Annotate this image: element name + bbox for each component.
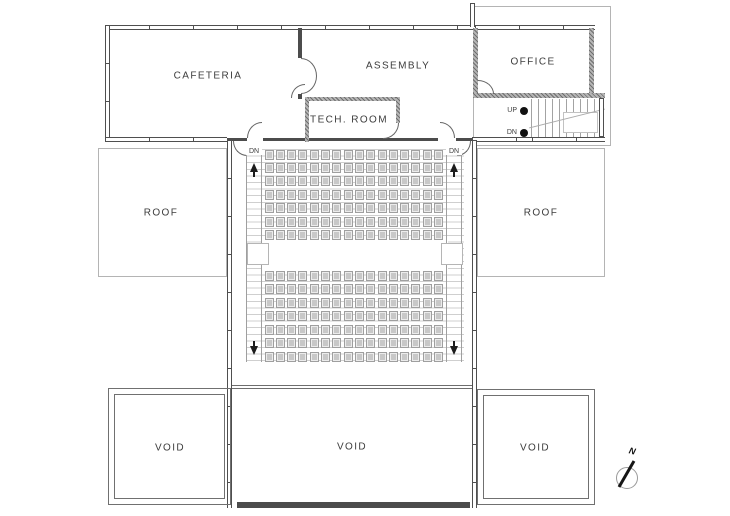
seat (355, 203, 364, 213)
seat (265, 203, 274, 213)
seat (366, 176, 375, 186)
seat (298, 271, 307, 281)
seat (265, 230, 274, 240)
seat (265, 338, 274, 348)
seat (400, 230, 409, 240)
compass-north-label: N (628, 445, 637, 456)
seat (423, 325, 432, 335)
seat (378, 230, 387, 240)
seat (355, 311, 364, 321)
seat (332, 311, 341, 321)
seat (355, 298, 364, 308)
seat (378, 271, 387, 281)
seat (265, 298, 274, 308)
seat (389, 190, 398, 200)
seat (321, 150, 330, 160)
seat (355, 271, 364, 281)
seat (276, 298, 285, 308)
seat (411, 203, 420, 213)
seat (310, 190, 319, 200)
seat (287, 338, 296, 348)
auditorium-wall-bottom (232, 385, 472, 389)
seat (310, 352, 319, 362)
seat (389, 338, 398, 348)
seat (378, 217, 387, 227)
seat (411, 230, 420, 240)
seat (310, 203, 319, 213)
room-label-cafeteria: CAFETERIA (174, 71, 243, 82)
seat (366, 338, 375, 348)
seat (332, 325, 341, 335)
seat (411, 352, 420, 362)
seat (389, 230, 398, 240)
seat (411, 190, 420, 200)
room-label-void-left: VOID (155, 443, 185, 454)
office-wall-right (589, 28, 594, 93)
seat (287, 325, 296, 335)
seat (298, 338, 307, 348)
office-wall-top (475, 25, 595, 30)
seat (366, 284, 375, 294)
seat (310, 150, 319, 160)
seat (366, 311, 375, 321)
seat (411, 298, 420, 308)
seat (355, 150, 364, 160)
seat (344, 352, 353, 362)
seat (366, 203, 375, 213)
aisle-up-arrow-icon (250, 163, 258, 172)
seat (344, 284, 353, 294)
stair-down-dot (520, 129, 528, 137)
wall-segment (105, 137, 227, 142)
seat (366, 190, 375, 200)
seat (310, 298, 319, 308)
seat (378, 352, 387, 362)
aisle-down-arrow-icon (450, 346, 458, 355)
wall-segment (298, 28, 302, 58)
seat (389, 203, 398, 213)
seat (411, 176, 420, 186)
seat (265, 325, 274, 335)
seat (332, 284, 341, 294)
seat (389, 352, 398, 362)
seat (400, 284, 409, 294)
seat (321, 176, 330, 186)
seat (298, 190, 307, 200)
seat (423, 150, 432, 160)
seat (400, 217, 409, 227)
seat (265, 284, 274, 294)
seat (423, 217, 432, 227)
tech-room-wall (305, 97, 400, 101)
seat (366, 230, 375, 240)
seat (400, 271, 409, 281)
seat (344, 230, 353, 240)
seat (400, 176, 409, 186)
seat (310, 311, 319, 321)
seat (378, 163, 387, 173)
wall-segment (599, 98, 604, 137)
seat (276, 190, 285, 200)
room-label-void-right: VOID (520, 443, 550, 454)
seat (310, 176, 319, 186)
seat (411, 271, 420, 281)
seat (366, 298, 375, 308)
seat (321, 325, 330, 335)
seat (434, 325, 443, 335)
seat (298, 325, 307, 335)
seat (400, 311, 409, 321)
seat (276, 325, 285, 335)
seat (265, 352, 274, 362)
seat (423, 203, 432, 213)
seat (434, 284, 443, 294)
seat (434, 298, 443, 308)
seat (332, 230, 341, 240)
seat (287, 176, 296, 186)
wall-segment (237, 502, 470, 508)
seat (400, 190, 409, 200)
seat (423, 176, 432, 186)
exterior-wall-top (105, 25, 475, 30)
seat (276, 150, 285, 160)
seat (344, 176, 353, 186)
seat (355, 338, 364, 348)
seat (434, 338, 443, 348)
auditorium-door-arc (233, 141, 247, 156)
seat (332, 217, 341, 227)
seat (265, 311, 274, 321)
seat (411, 284, 420, 294)
seat (310, 271, 319, 281)
seat (366, 325, 375, 335)
seat (378, 298, 387, 308)
seat (400, 338, 409, 348)
seat (276, 217, 285, 227)
seat (389, 325, 398, 335)
seat (344, 338, 353, 348)
seat (332, 298, 341, 308)
seat (321, 271, 330, 281)
seat (355, 163, 364, 173)
seat (355, 325, 364, 335)
seat (344, 298, 353, 308)
aisle-landing-right (441, 243, 463, 265)
seat (378, 338, 387, 348)
aisle-landing-left (247, 243, 269, 265)
seat (366, 352, 375, 362)
seat (344, 217, 353, 227)
seat (265, 150, 274, 160)
tech-room-wall (305, 97, 309, 142)
seat (287, 271, 296, 281)
wall-segment (470, 3, 475, 27)
seat (276, 203, 285, 213)
seat (389, 163, 398, 173)
seat (298, 311, 307, 321)
seat (298, 176, 307, 186)
seat (389, 217, 398, 227)
seat (411, 163, 420, 173)
seat (321, 311, 330, 321)
seat (400, 298, 409, 308)
exit-left-label: DN (246, 148, 262, 155)
seat (332, 150, 341, 160)
seat (310, 163, 319, 173)
seat (344, 163, 353, 173)
seat (287, 230, 296, 240)
seat (366, 217, 375, 227)
seat (344, 150, 353, 160)
seat (378, 190, 387, 200)
seat (276, 271, 285, 281)
seat (265, 176, 274, 186)
seat (332, 176, 341, 186)
seat (332, 163, 341, 173)
seat (265, 163, 274, 173)
seat (298, 163, 307, 173)
seat (321, 203, 330, 213)
room-label-void-center: VOID (337, 442, 367, 453)
seat (366, 271, 375, 281)
exit-right-label: DN (446, 148, 462, 155)
seat (366, 150, 375, 160)
seat (411, 325, 420, 335)
seat (434, 271, 443, 281)
seat (389, 271, 398, 281)
seat (298, 352, 307, 362)
seat (321, 163, 330, 173)
seat (321, 217, 330, 227)
seat (378, 325, 387, 335)
seat (276, 163, 285, 173)
seat (400, 325, 409, 335)
seat (287, 311, 296, 321)
aisle-up-arrow-icon (450, 163, 458, 172)
seat (298, 284, 307, 294)
seat (287, 190, 296, 200)
seat (310, 325, 319, 335)
seat (287, 163, 296, 173)
seat (389, 150, 398, 160)
stair-down-label: DN (496, 129, 517, 136)
seat (434, 352, 443, 362)
seat (355, 352, 364, 362)
entry-door-arc (440, 122, 455, 138)
seat (423, 271, 432, 281)
seat (265, 190, 274, 200)
seat (344, 271, 353, 281)
seat (298, 150, 307, 160)
floor-plan: UP DN DN DN CAFETERIA ASSEMBLY OFFICE TE… (0, 0, 730, 516)
seat (355, 176, 364, 186)
seat (332, 203, 341, 213)
seat (287, 150, 296, 160)
seat (287, 352, 296, 362)
seat (411, 311, 420, 321)
seat (434, 203, 443, 213)
seat (355, 217, 364, 227)
room-label-roof-right: ROOF (524, 208, 559, 219)
seat (276, 338, 285, 348)
seat (434, 311, 443, 321)
seat (423, 190, 432, 200)
seat (321, 338, 330, 348)
seat (400, 163, 409, 173)
wall-segment (532, 137, 605, 142)
seat (287, 203, 296, 213)
seat (355, 284, 364, 294)
seat (434, 150, 443, 160)
seat (310, 230, 319, 240)
seat (389, 298, 398, 308)
seat (378, 150, 387, 160)
room-label-assembly: ASSEMBLY (366, 61, 430, 72)
seat (265, 217, 274, 227)
seat (378, 284, 387, 294)
seat (423, 298, 432, 308)
seat (321, 284, 330, 294)
seat (434, 176, 443, 186)
seat (400, 352, 409, 362)
seat (411, 338, 420, 348)
seat (355, 190, 364, 200)
seat (423, 230, 432, 240)
seat (389, 311, 398, 321)
seat (287, 217, 296, 227)
seat (310, 284, 319, 294)
seat (400, 203, 409, 213)
cross-aisle (262, 241, 448, 269)
seat (298, 298, 307, 308)
seat (310, 217, 319, 227)
seat (298, 217, 307, 227)
seat (321, 230, 330, 240)
wall-segment (472, 137, 532, 142)
seat (411, 150, 420, 160)
seat (366, 163, 375, 173)
seat (434, 190, 443, 200)
seat (423, 163, 432, 173)
seat (276, 176, 285, 186)
seat (310, 338, 319, 348)
door-arc (291, 84, 305, 98)
seat (276, 230, 285, 240)
seat (321, 298, 330, 308)
seat (332, 352, 341, 362)
seat (434, 230, 443, 240)
seat (298, 203, 307, 213)
double-door-arc (301, 58, 317, 76)
seat (344, 190, 353, 200)
seat (423, 311, 432, 321)
auditorium-wall-top (263, 138, 438, 141)
seat (344, 325, 353, 335)
seat (423, 284, 432, 294)
tech-room-wall (396, 97, 400, 123)
seat (265, 271, 274, 281)
seat (378, 203, 387, 213)
seat (287, 298, 296, 308)
seat (321, 190, 330, 200)
seat (411, 217, 420, 227)
stair-up-dot (520, 107, 528, 115)
exterior-wall-left (105, 25, 110, 142)
seat (344, 311, 353, 321)
seat (378, 176, 387, 186)
aisle-down-arrow-icon (250, 346, 258, 355)
room-label-tech-room: TECH. ROOM (310, 115, 388, 126)
room-label-roof-left: ROOF (144, 208, 179, 219)
seat (298, 230, 307, 240)
seat (423, 352, 432, 362)
seat (355, 230, 364, 240)
seat (389, 284, 398, 294)
seat (332, 190, 341, 200)
seat (389, 176, 398, 186)
seat (287, 284, 296, 294)
seat (276, 352, 285, 362)
seat (378, 311, 387, 321)
seat (400, 150, 409, 160)
seat (332, 271, 341, 281)
seat (321, 352, 330, 362)
seat (276, 311, 285, 321)
seat (434, 163, 443, 173)
seat (276, 284, 285, 294)
seat (434, 217, 443, 227)
room-label-office: OFFICE (510, 57, 555, 68)
seat (423, 338, 432, 348)
entry-door-arc (247, 122, 262, 138)
stair-up-label: UP (496, 107, 517, 114)
seat (344, 203, 353, 213)
seat (332, 338, 341, 348)
